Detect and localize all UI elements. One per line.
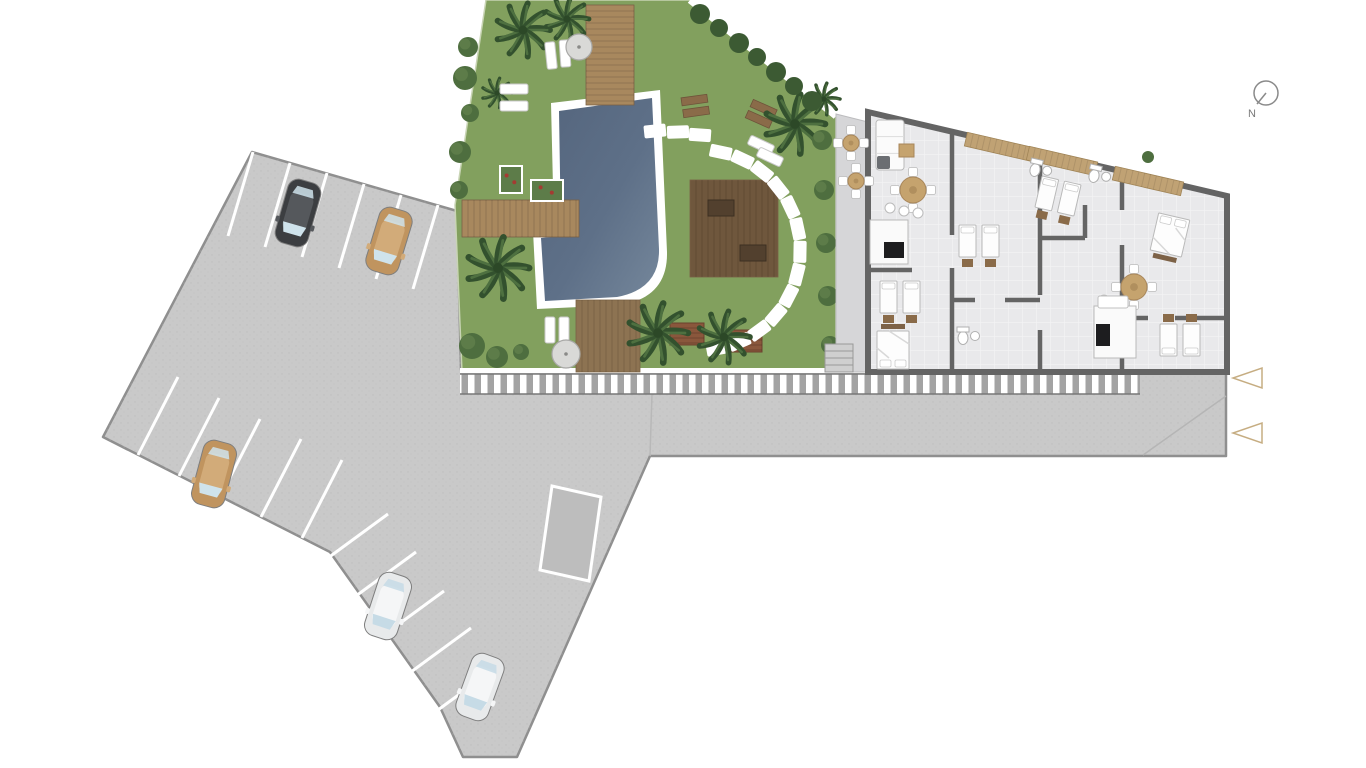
hedge-tree xyxy=(729,33,749,53)
bush-highlight xyxy=(488,348,500,360)
site-plan-drawing: N xyxy=(0,0,1366,768)
sun-lounger xyxy=(545,42,558,70)
stool xyxy=(885,203,895,213)
hedge-tree xyxy=(710,19,728,37)
sun-lounger xyxy=(500,84,528,94)
bush-highlight xyxy=(820,288,831,299)
deck-table xyxy=(740,245,766,261)
bush-highlight xyxy=(455,68,468,81)
bush-highlight xyxy=(814,132,825,143)
bush-highlight xyxy=(514,345,523,354)
site-plan: N xyxy=(0,0,1366,768)
sun-lounger xyxy=(500,101,528,111)
hedge-tree xyxy=(766,62,786,82)
stool xyxy=(899,206,909,216)
coffee-table xyxy=(899,144,914,157)
flower-planter xyxy=(500,166,522,193)
stepping-stone xyxy=(689,128,712,143)
stepping-stone xyxy=(793,241,806,263)
wood-deck xyxy=(576,300,640,372)
wood-deck xyxy=(690,180,778,277)
wood-deck xyxy=(586,5,634,105)
bush-highlight xyxy=(451,182,461,192)
sun-lounger xyxy=(559,317,569,343)
stool xyxy=(913,208,923,218)
bench-seat xyxy=(1098,296,1128,308)
bush-highlight xyxy=(461,335,475,349)
patio-stairs xyxy=(825,344,853,372)
building xyxy=(825,112,1227,372)
north-needle xyxy=(1257,93,1266,104)
north-label: N xyxy=(1248,108,1256,120)
corner-marking xyxy=(540,486,601,581)
hedge-tree xyxy=(690,4,710,24)
deck-table xyxy=(708,200,734,216)
bush-highlight xyxy=(451,143,463,155)
parasol xyxy=(552,340,580,368)
sun-lounger xyxy=(545,317,555,343)
entrance-arrow-icon xyxy=(1233,368,1262,388)
bush-highlight xyxy=(816,182,827,193)
wood-deck xyxy=(462,200,579,237)
parasol xyxy=(566,34,592,60)
bush-highlight xyxy=(462,105,472,115)
stepping-stone xyxy=(643,123,666,138)
striped-walkway xyxy=(460,374,1140,394)
stepping-stone xyxy=(667,125,689,139)
armchair xyxy=(877,156,890,169)
north-indicator: N xyxy=(1248,81,1278,120)
hedge-tree xyxy=(748,48,766,66)
flower-planter xyxy=(531,180,563,201)
bush-highlight xyxy=(460,39,471,50)
hedge-tree xyxy=(802,91,822,111)
bush-highlight xyxy=(818,235,829,246)
double-bed xyxy=(877,324,909,369)
entrance-markers xyxy=(1233,368,1262,443)
entrance-arrow-icon xyxy=(1233,423,1262,443)
hedge-tree xyxy=(785,77,803,95)
small-plant xyxy=(1142,151,1154,163)
